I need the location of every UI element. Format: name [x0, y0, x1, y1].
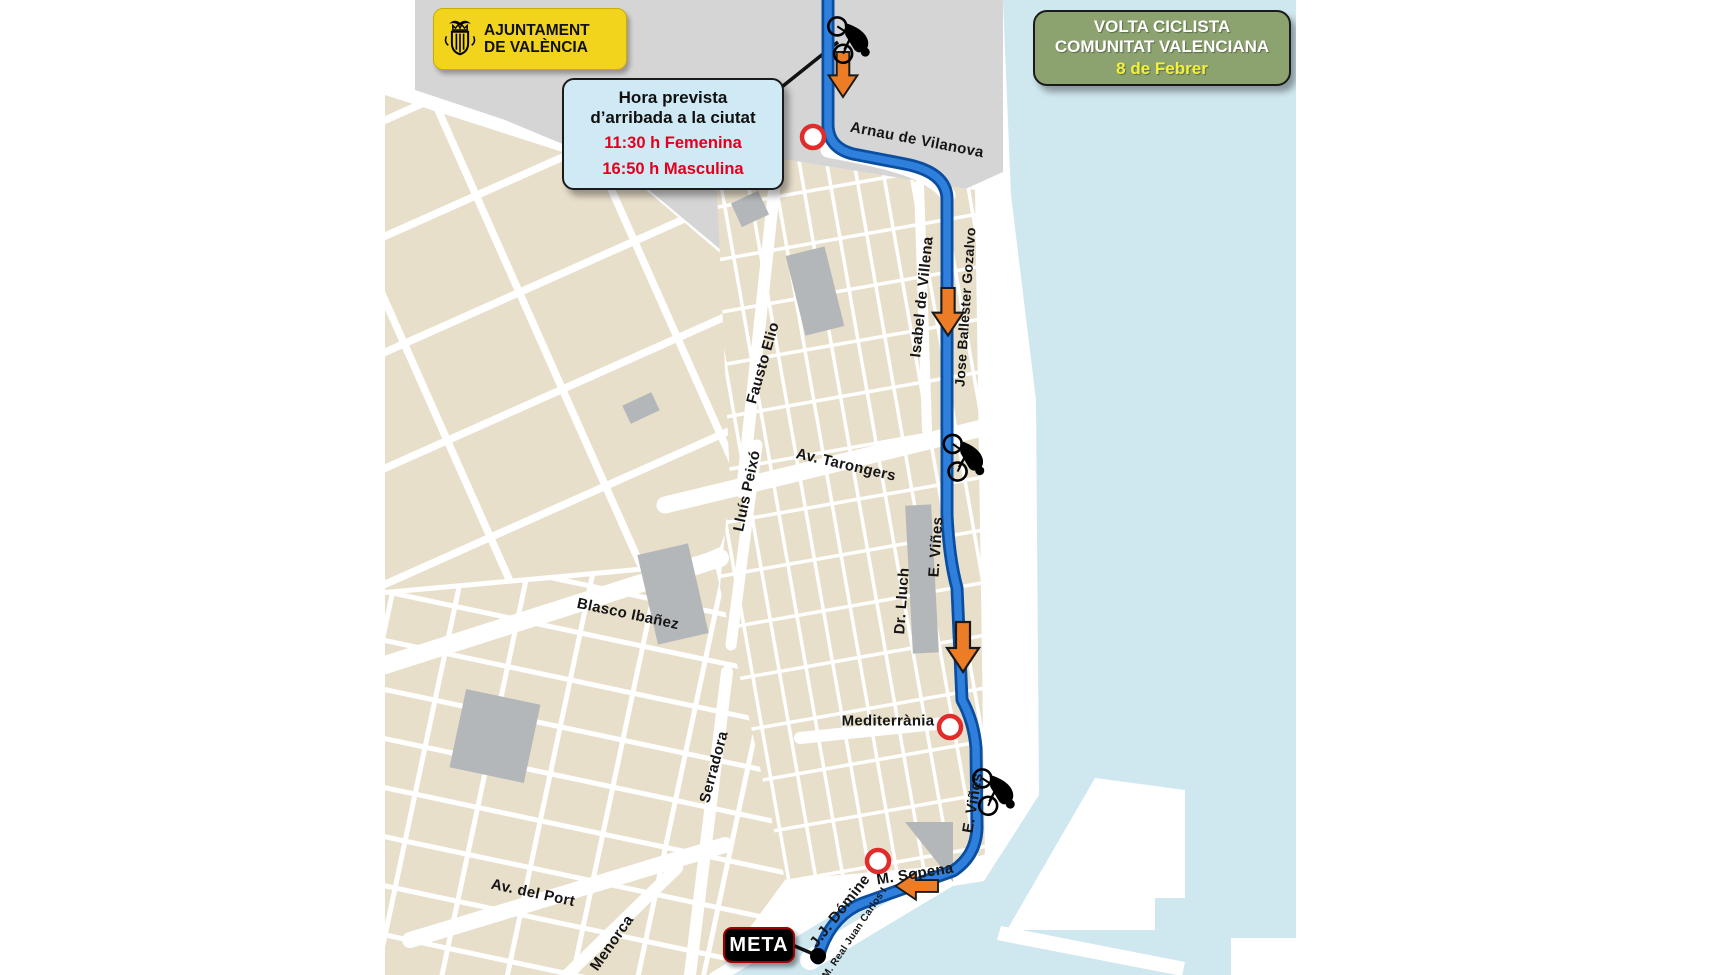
- ajuntament-line1: AJUNTAMENT: [484, 22, 590, 39]
- control-point-marker: [939, 716, 961, 738]
- callout-title-line1: Hora prevista: [570, 88, 776, 108]
- ajuntament-line2: DE VALÈNCIA: [484, 39, 590, 56]
- event-badge: VOLTA CICLISTA COMUNITAT VALENCIANA 8 de…: [1033, 10, 1291, 86]
- male-arrival-time: 16:50 h Masculina: [570, 160, 776, 179]
- arrival-time-callout: Hora prevista d’arribada a la ciutat 11:…: [562, 78, 784, 190]
- street-label-mediterrania: Mediterrània: [842, 713, 935, 730]
- control-point-marker: [867, 850, 889, 872]
- finish-dot: [810, 948, 826, 964]
- finish-line-badge: META: [723, 927, 795, 963]
- female-arrival-time: 11:30 h Femenina: [570, 134, 776, 153]
- finish-label: META: [729, 934, 788, 957]
- control-point-marker: [802, 126, 824, 148]
- route-map: Arnau de Vilanova Isabel de Villena Jose…: [385, 0, 1296, 975]
- basemap: [385, 0, 1296, 975]
- event-title-line1: VOLTA CICLISTA: [1094, 17, 1230, 37]
- callout-title-line2: d’arribada a la ciutat: [570, 108, 776, 128]
- coat-of-arms-icon: [442, 16, 478, 62]
- event-date: 8 de Febrer: [1116, 58, 1208, 79]
- event-title-line2: COMUNITAT VALENCIANA: [1055, 37, 1269, 57]
- ajuntament-badge: AJUNTAMENT DE VALÈNCIA: [433, 8, 627, 70]
- district-port: [385, 565, 785, 975]
